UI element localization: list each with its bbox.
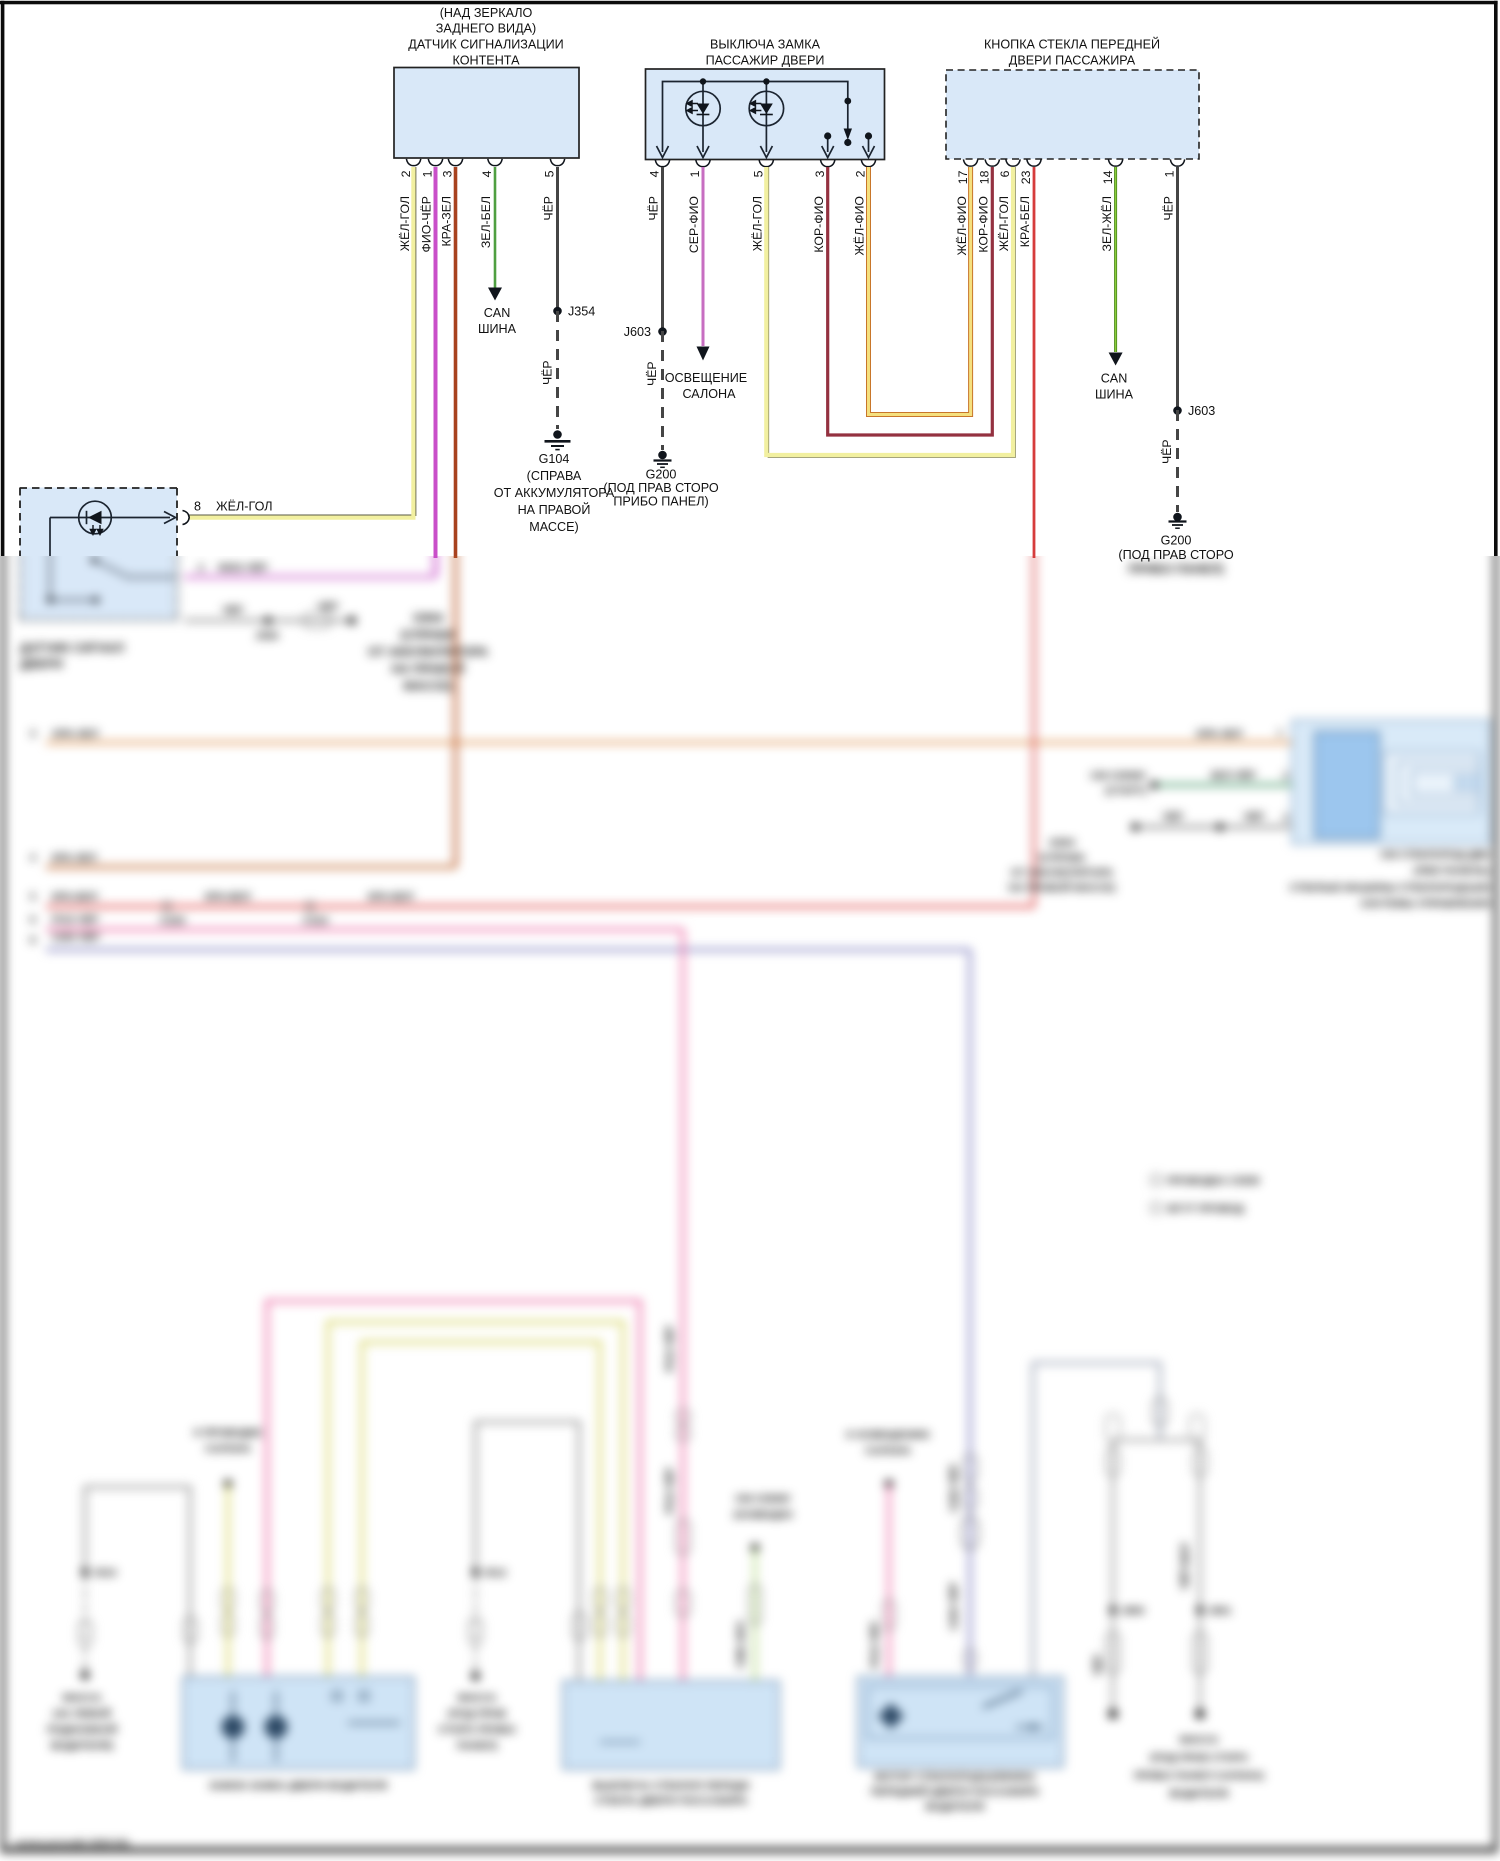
svg-text:КНОПКА СТЕКЛА ПЕРЕДНЕЙ: КНОПКА СТЕКЛА ПЕРЕДНЕЙ <box>984 37 1160 52</box>
svg-text:ЖЁЛ-ФИО: ЖЁЛ-ФИО <box>853 196 867 255</box>
svg-text:КРА-БЕЛ: КРА-БЕЛ <box>1018 196 1032 247</box>
svg-text:МОТОР СТЕКЛОПОДЪЕМНИКА: МОТОР СТЕКЛОПОДЪЕМНИКА <box>875 1771 1036 1783</box>
svg-text:3: 3 <box>813 170 827 177</box>
svg-text:5: 5 <box>543 170 557 177</box>
svg-text:J603: J603 <box>624 325 651 339</box>
svg-text:(СТАРТ): (СТАРТ) <box>1105 785 1146 797</box>
svg-text:7: 7 <box>1277 729 1283 740</box>
svg-text:К ПРОВОДКЕ: К ПРОВОДКЕ <box>194 1427 262 1439</box>
svg-text:(ОСВЕЩЕН: (ОСВЕЩЕН <box>733 1509 792 1521</box>
svg-text:ЖЁЛ-ГОЛ: ЖЁЛ-ГОЛ <box>751 196 765 251</box>
svg-text:(ЗА ЛЕВОЙ: (ЗА ЛЕВОЙ <box>53 1707 111 1720</box>
svg-text:3: 3 <box>30 729 36 740</box>
svg-text:ЧЁР: ЧЁР <box>542 196 556 221</box>
svg-text:МАССЕ): МАССЕ) <box>529 520 578 534</box>
svg-text:J900: J900 <box>1121 1605 1145 1617</box>
svg-text:(ПОД ПРАВ: (ПОД ПРАВ <box>448 1708 507 1720</box>
svg-text:ПАНЕЛ): ПАНЕЛ) <box>457 1740 498 1752</box>
svg-text:14: 14 <box>1101 170 1115 184</box>
svg-text:J506: J506 <box>255 630 279 642</box>
svg-text:J354: J354 <box>568 305 595 319</box>
svg-text:J901: J901 <box>1208 1605 1232 1617</box>
svg-text:ПЕРЕДНЕЙ ДВЕРИ ПАССАЖИРА: ПЕРЕДНЕЙ ДВЕРИ ПАССАЖИРА <box>871 1785 1040 1798</box>
svg-text:ФИО-ЧЁР: ФИО-ЧЁР <box>218 561 268 574</box>
svg-text:СВЕ-ЗЕЛ: СВЕ-ЗЕЛ <box>735 1621 747 1668</box>
svg-text:ПРОВОДКА СХЕМ: ПРОВОДКА СХЕМ <box>1167 1175 1260 1187</box>
svg-text:САЛОНА: САЛОНА <box>682 387 736 401</box>
svg-text:G904: G904 <box>413 611 443 625</box>
svg-text:ЧЁР: ЧЁР <box>647 196 661 221</box>
svg-text:4: 4 <box>648 170 662 177</box>
svg-text:ЖЁЛ-ФИО: ЖЁЛ-ФИО <box>955 196 969 255</box>
svg-text:СМ СХЕМУ: СМ СХЕМУ <box>1090 770 1146 782</box>
svg-text:ШИНА: ШИНА <box>1095 388 1134 402</box>
svg-text:ЧЁР: ЧЁР <box>222 604 243 617</box>
svg-text:2: 2 <box>399 170 413 177</box>
svg-text:КРА-ЗЕЛ: КРА-ЗЕЛ <box>440 196 454 247</box>
svg-text:ШИНА: ШИНА <box>478 322 517 336</box>
svg-text:ОТ АККУМУЛЯТОРА: ОТ АККУМУЛЯТОРА <box>1011 867 1114 879</box>
svg-text:2: 2 <box>854 170 868 177</box>
svg-text:ЖЁЛ-ГОЛ: ЖЁЛ-ГОЛ <box>997 196 1011 251</box>
svg-text:ФИО-ЧЁР: ФИО-ЧЁР <box>420 196 434 252</box>
svg-text:ЗЕЛ-БЕЛ: ЗЕЛ-БЕЛ <box>479 196 493 248</box>
svg-text:ДАТЧИК СИГНАЛИЗАЦИИ: ДАТЧИК СИГНАЛИЗАЦИИ <box>408 38 563 52</box>
svg-text:(СПРАВА: (СПРАВА <box>401 628 456 642</box>
svg-text:ЧЁР: ЧЁР <box>317 600 338 613</box>
svg-text:G904: G904 <box>1049 837 1075 849</box>
svg-text:ВЫКЛЮЧА СТЕКЛОП ПЕРЕДН: ВЫКЛЮЧА СТЕКЛОП ПЕРЕДН <box>593 1780 750 1792</box>
svg-text:G200: G200 <box>1161 534 1192 548</box>
svg-text:ЧЁР: ЧЁР <box>645 361 659 386</box>
svg-text:СТЕКЛА ДВЕРИ ПАССАЖИРА: СТЕКЛА ДВЕРИ ПАССАЖИРА <box>595 1795 748 1807</box>
svg-text:ЧЁР-БЕЛ: ЧЁР-БЕЛ <box>1178 1543 1191 1590</box>
svg-text:МАССА: МАССА <box>458 1692 497 1704</box>
svg-text:ПРИБО ПАНЕЛ): ПРИБО ПАНЕЛ) <box>613 495 708 509</box>
svg-text:МАССА: МАССА <box>63 1692 102 1704</box>
svg-text:ЧЁР: ЧЁР <box>1091 1655 1104 1676</box>
svg-text:ПРИБО ПАНЕЛ): ПРИБО ПАНЕЛ) <box>1128 562 1223 576</box>
svg-text:2: 2 <box>198 562 204 574</box>
svg-text:ЖЁЛ-ГОЛ: ЖЁЛ-ГОЛ <box>216 500 273 514</box>
svg-text:ВОДИТЕЛЯ): ВОДИТЕЛЯ) <box>51 1740 113 1752</box>
svg-text:СМ СТЕКЛОПОД ДВЕ: СМ СТЕКЛОПОД ДВЕ <box>1380 849 1490 861</box>
svg-text:(НАД ЗЕРКАЛО: (НАД ЗЕРКАЛО <box>440 6 533 20</box>
svg-text:ПОДНОЖКОЙ: ПОДНОЖКОЙ <box>47 1723 117 1736</box>
svg-text:2: 2 <box>1283 771 1289 782</box>
svg-text:1: 1 <box>688 170 702 177</box>
svg-text:(ЛЕВ ПАНЕЛЬ): (ЛЕВ ПАНЕЛЬ) <box>1414 865 1491 877</box>
svg-text:СТОРО ПРИБО: СТОРО ПРИБО <box>438 1724 515 1736</box>
svg-text:ДВЕРИ ПАССАЖИРА: ДВЕРИ ПАССАЖИРА <box>1009 54 1136 68</box>
svg-text:ПАССАЖИР ДВЕРИ: ПАССАЖИР ДВЕРИ <box>706 54 825 68</box>
svg-text:ЧЁР: ЧЁР <box>541 360 555 385</box>
svg-text:J512: J512 <box>483 1567 507 1579</box>
svg-text:G200: G200 <box>646 468 677 482</box>
svg-text:СТЕКЛЫЕ МАШИНЫ СТЕКЛОПОДЪЕМ: СТЕКЛЫЕ МАШИНЫ СТЕКЛОПОДЪЕМ <box>1289 882 1490 894</box>
svg-text:18: 18 <box>978 170 992 184</box>
svg-text:ЗЕЛ-ЖЁЛ: ЗЕЛ-ЖЁЛ <box>1100 196 1114 251</box>
svg-text:5: 5 <box>30 892 36 903</box>
svg-text:КОР-ФИО: КОР-ФИО <box>812 196 826 253</box>
svg-text:МАССА: МАССА <box>1180 1734 1219 1746</box>
svg-text:(ПОД ПРАВ СТОРО: (ПОД ПРАВ СТОРО <box>603 481 718 495</box>
svg-text:ВЫКЛЮЧА ЗАМКА: ВЫКЛЮЧА ЗАМКА <box>710 38 821 52</box>
svg-text:РОЗ-ЧЁР: РОЗ-ЧЁР <box>663 1467 676 1514</box>
svg-text:ДАТЧИК СИГНАЛ: ДАТЧИК СИГНАЛ <box>20 641 124 655</box>
svg-text:ЖЁЛ-ГОЛ: ЖЁЛ-ГОЛ <box>398 196 412 251</box>
svg-text:ВОДИТЕЛЯ: ВОДИТЕЛЯ <box>926 1801 985 1813</box>
svg-text:C310: C310 <box>303 915 328 927</box>
svg-text:КРА-БЕЛ: КРА-БЕЛ <box>368 891 414 903</box>
svg-text:КРА-БЕЛ: КРА-БЕЛ <box>205 891 251 903</box>
svg-text:ОСВЕЩЕНИЕ: ОСВЕЩЕНИЕ <box>665 371 747 385</box>
svg-text:К ОСВЕЩЕНИЮ: К ОСВЕЩЕНИЮ <box>846 1429 929 1441</box>
svg-text:ПРИБО ПАНЕЛ САЛОНА): ПРИБО ПАНЕЛ САЛОНА) <box>1134 1770 1264 1782</box>
svg-text:3: 3 <box>1283 813 1289 824</box>
svg-text:СИН-ЧЁР: СИН-ЧЁР <box>52 931 100 944</box>
svg-text:1: 1 <box>1163 170 1177 177</box>
svg-text:(СПРАВА: (СПРАВА <box>527 469 582 483</box>
svg-text:РОЗ-ЧЁР: РОЗ-ЧЁР <box>52 913 99 926</box>
svg-text:САЛОНА: САЛОНА <box>205 1443 251 1455</box>
svg-text:СИН-ЧЁР: СИН-ЧЁР <box>947 1464 960 1512</box>
svg-text:C225: C225 <box>160 915 185 927</box>
svg-text:ЧЁР: ЧЁР <box>1243 810 1264 823</box>
svg-text:6: 6 <box>30 915 36 926</box>
svg-text:МАССЕ): МАССЕ) <box>404 679 453 693</box>
svg-text:ЖГУТ ПРОВОД: ЖГУТ ПРОВОД <box>1166 1203 1244 1215</box>
svg-text:КОНТЕНТА: КОНТЕНТА <box>453 54 521 68</box>
svg-text:17: 17 <box>956 170 970 184</box>
svg-text:РОЗ-ЧЁР: РОЗ-ЧЁР <box>663 1325 676 1372</box>
svg-text:ЧЁР: ЧЁР <box>1162 196 1176 221</box>
svg-text:САЛОНА: САЛОНА <box>865 1445 911 1457</box>
svg-text:J510: J510 <box>93 1567 117 1579</box>
svg-text:НА ПРАВОЙ: НА ПРАВОЙ <box>518 502 591 517</box>
svg-text:ОТ АККУМУЛЯТОРА: ОТ АККУМУЛЯТОРА <box>494 486 615 500</box>
svg-text:CAN: CAN <box>484 306 511 320</box>
svg-text:ЗЕЛ-ЧЁР: ЗЕЛ-ЧЁР <box>1210 769 1256 782</box>
svg-text:СИН-ЧЁР: СИН-ЧЁР <box>947 1582 960 1630</box>
svg-text:РОЗ-ЧЁР: РОЗ-ЧЁР <box>868 1621 881 1668</box>
svg-text:4: 4 <box>30 853 36 864</box>
svg-text:1: 1 <box>421 170 435 177</box>
svg-text:3: 3 <box>441 170 455 177</box>
svg-text:ЗАМОК ЗАМКА ДВЕРИ ВОДИТЕЛЯ: ЗАМОК ЗАМКА ДВЕРИ ВОДИТЕЛЯ <box>209 1780 387 1792</box>
svg-text:ВОДИТЕЛЯ: ВОДИТЕЛЯ <box>1170 1788 1229 1800</box>
svg-text:СМ СХЕМУ: СМ СХЕМУ <box>735 1493 791 1505</box>
svg-text:ЗАДНЕГО ВИДА): ЗАДНЕГО ВИДА) <box>436 22 536 36</box>
svg-text:СЕР-ФИО: СЕР-ФИО <box>687 196 701 253</box>
svg-text:4: 4 <box>480 170 494 177</box>
svg-text:23: 23 <box>1019 170 1033 184</box>
svg-text:(ПОД ПРАВ СТОРО: (ПОД ПРАВ СТОРО <box>1150 1752 1248 1764</box>
svg-text:ОТ АККУМУЛЯТОРА: ОТ АККУМУЛЯТОРА <box>368 645 488 659</box>
svg-text:5: 5 <box>752 170 766 177</box>
svg-text:ЧЁР: ЧЁР <box>1160 439 1174 464</box>
svg-text:8: 8 <box>30 936 36 947</box>
svg-text:ЧЁР: ЧЁР <box>1162 810 1183 823</box>
svg-text:ОРА-ЗЕЛ: ОРА-ЗЕЛ <box>1196 728 1242 740</box>
svg-text:ДВЕРИ: ДВЕРИ <box>20 657 63 671</box>
svg-text:СИСТЕМЫ УПРАВЛЕНИЯ: СИСТЕМЫ УПРАВЛЕНИЯ <box>1360 898 1490 910</box>
svg-text:cxema-provodki 2020-041: cxema-provodki 2020-041 <box>14 1838 130 1849</box>
svg-text:G104: G104 <box>539 452 570 466</box>
svg-text:CAN: CAN <box>1101 372 1128 386</box>
svg-text:J603: J603 <box>1188 404 1215 418</box>
svg-text:ОРА-ЗЕЛ: ОРА-ЗЕЛ <box>52 728 98 740</box>
svg-text:8: 8 <box>194 500 201 514</box>
svg-text:КРА-БЕЛ: КРА-БЕЛ <box>52 891 98 903</box>
svg-text:(СПРАВА: (СПРАВА <box>1039 852 1086 864</box>
svg-text:КОР-ФИО: КОР-ФИО <box>977 196 991 253</box>
svg-text:НА ПРАВОЙ МАССЕ): НА ПРАВОЙ МАССЕ) <box>1009 881 1116 894</box>
svg-text:КРА-ЗЕЛ: КРА-ЗЕЛ <box>52 852 97 864</box>
svg-text:6: 6 <box>998 170 1012 177</box>
